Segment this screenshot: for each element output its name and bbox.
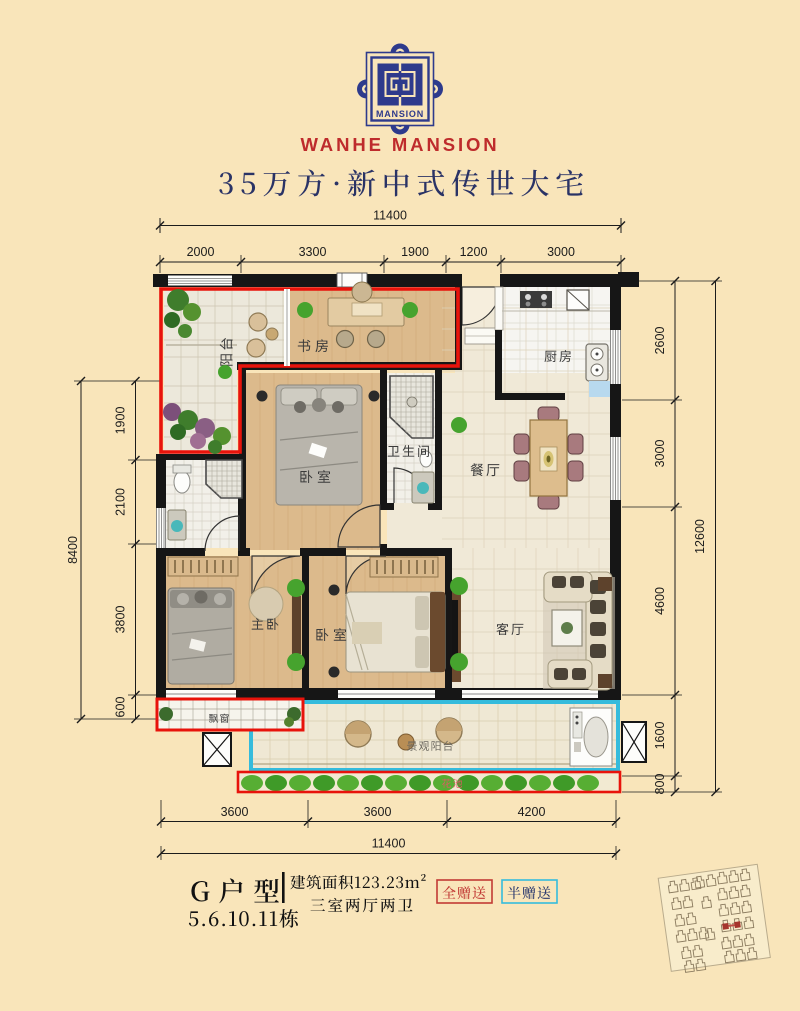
svg-text:3600: 3600 xyxy=(221,805,249,819)
svg-text:2100: 2100 xyxy=(114,488,128,516)
svg-text:800: 800 xyxy=(653,774,667,795)
svg-text:2600: 2600 xyxy=(653,327,667,355)
svg-text:8400: 8400 xyxy=(66,536,80,564)
svg-text:1600: 1600 xyxy=(653,722,667,750)
svg-text:11400: 11400 xyxy=(373,209,407,223)
svg-text:3000: 3000 xyxy=(547,245,575,259)
svg-text:1900: 1900 xyxy=(114,407,128,435)
svg-text:3300: 3300 xyxy=(299,245,327,259)
svg-text:12600: 12600 xyxy=(693,519,707,554)
svg-text:4600: 4600 xyxy=(653,587,667,615)
svg-text:3600: 3600 xyxy=(364,805,392,819)
svg-text:1200: 1200 xyxy=(460,245,488,259)
svg-text:3000: 3000 xyxy=(653,440,667,468)
svg-text:600: 600 xyxy=(114,697,128,718)
svg-text:2000: 2000 xyxy=(187,245,215,259)
svg-text:MANSION: MANSION xyxy=(376,109,424,119)
svg-text:3800: 3800 xyxy=(114,606,128,634)
svg-text:WANHE MANSION: WANHE MANSION xyxy=(300,134,499,155)
svg-text:4200: 4200 xyxy=(518,805,546,819)
svg-text:1900: 1900 xyxy=(401,245,429,259)
svg-text:11400: 11400 xyxy=(372,837,406,851)
